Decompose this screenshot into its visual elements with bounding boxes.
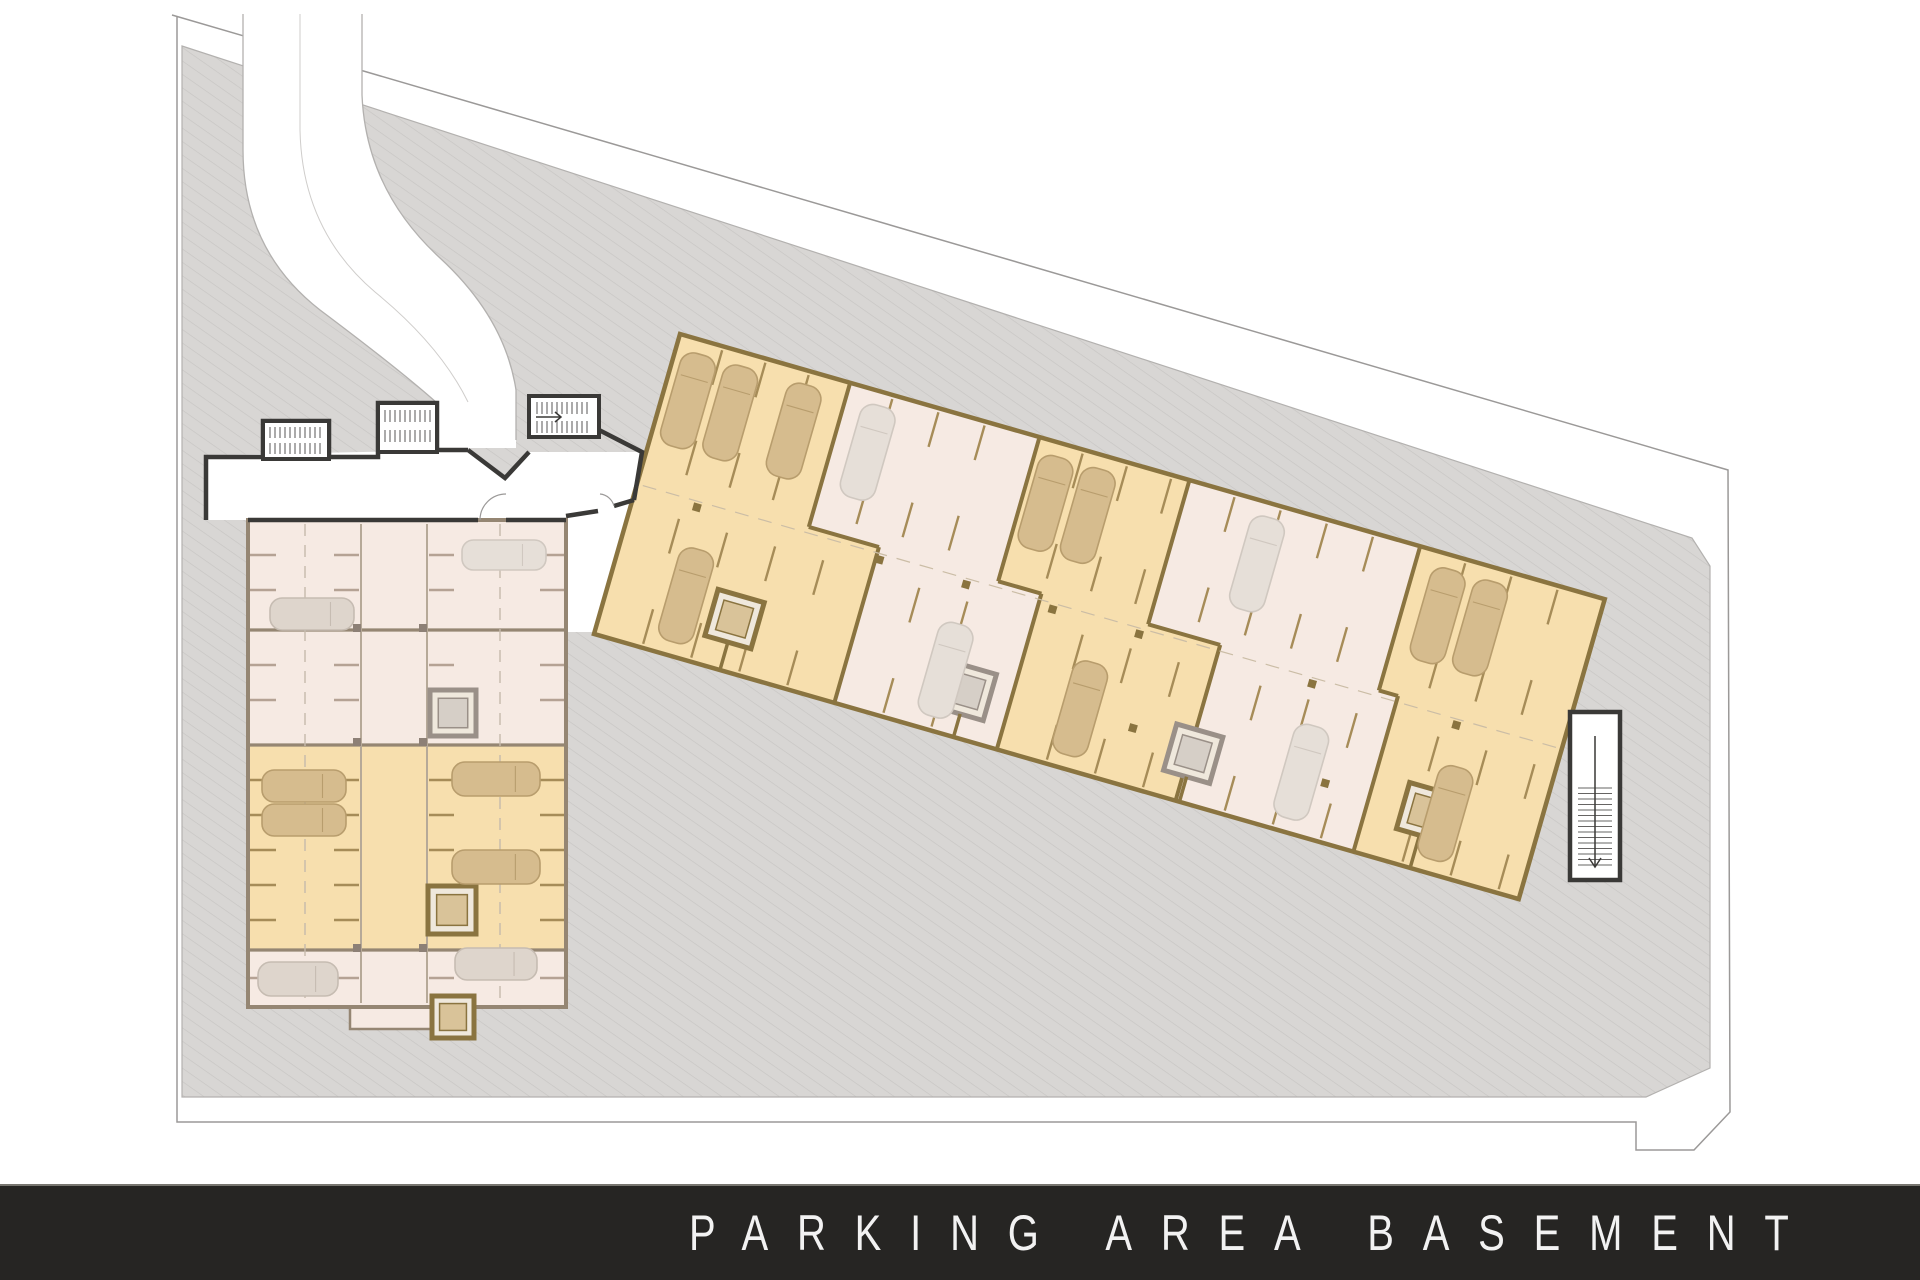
car-tan	[262, 770, 346, 802]
page-title: PARKING AREA BASEMENT	[689, 1204, 1818, 1262]
stair-enclosure	[378, 403, 437, 452]
floor-plan	[0, 0, 1920, 1280]
title-bar: PARKING AREA BASEMENT	[0, 1184, 1920, 1280]
elevator-core	[432, 996, 474, 1038]
elevator-core	[1164, 724, 1223, 783]
car-gray	[258, 962, 338, 996]
car-gray	[270, 598, 354, 630]
car-gray	[455, 948, 537, 980]
car-tan	[452, 850, 540, 884]
stair-core-west	[263, 421, 329, 459]
elevator-core	[428, 886, 476, 934]
car-tan	[452, 762, 540, 796]
car-gray	[462, 540, 546, 570]
stair-enclosure	[263, 421, 329, 459]
stair-core-corridor	[529, 396, 599, 437]
stair-core-east	[1570, 712, 1620, 880]
car-tan	[262, 804, 346, 836]
unit-pink	[248, 630, 566, 745]
elevator-core	[705, 589, 764, 648]
page: PARKING AREA BASEMENT	[0, 0, 1920, 1280]
elevator-core	[430, 690, 476, 736]
stair-core-north	[378, 403, 437, 452]
left-building	[248, 520, 566, 1038]
